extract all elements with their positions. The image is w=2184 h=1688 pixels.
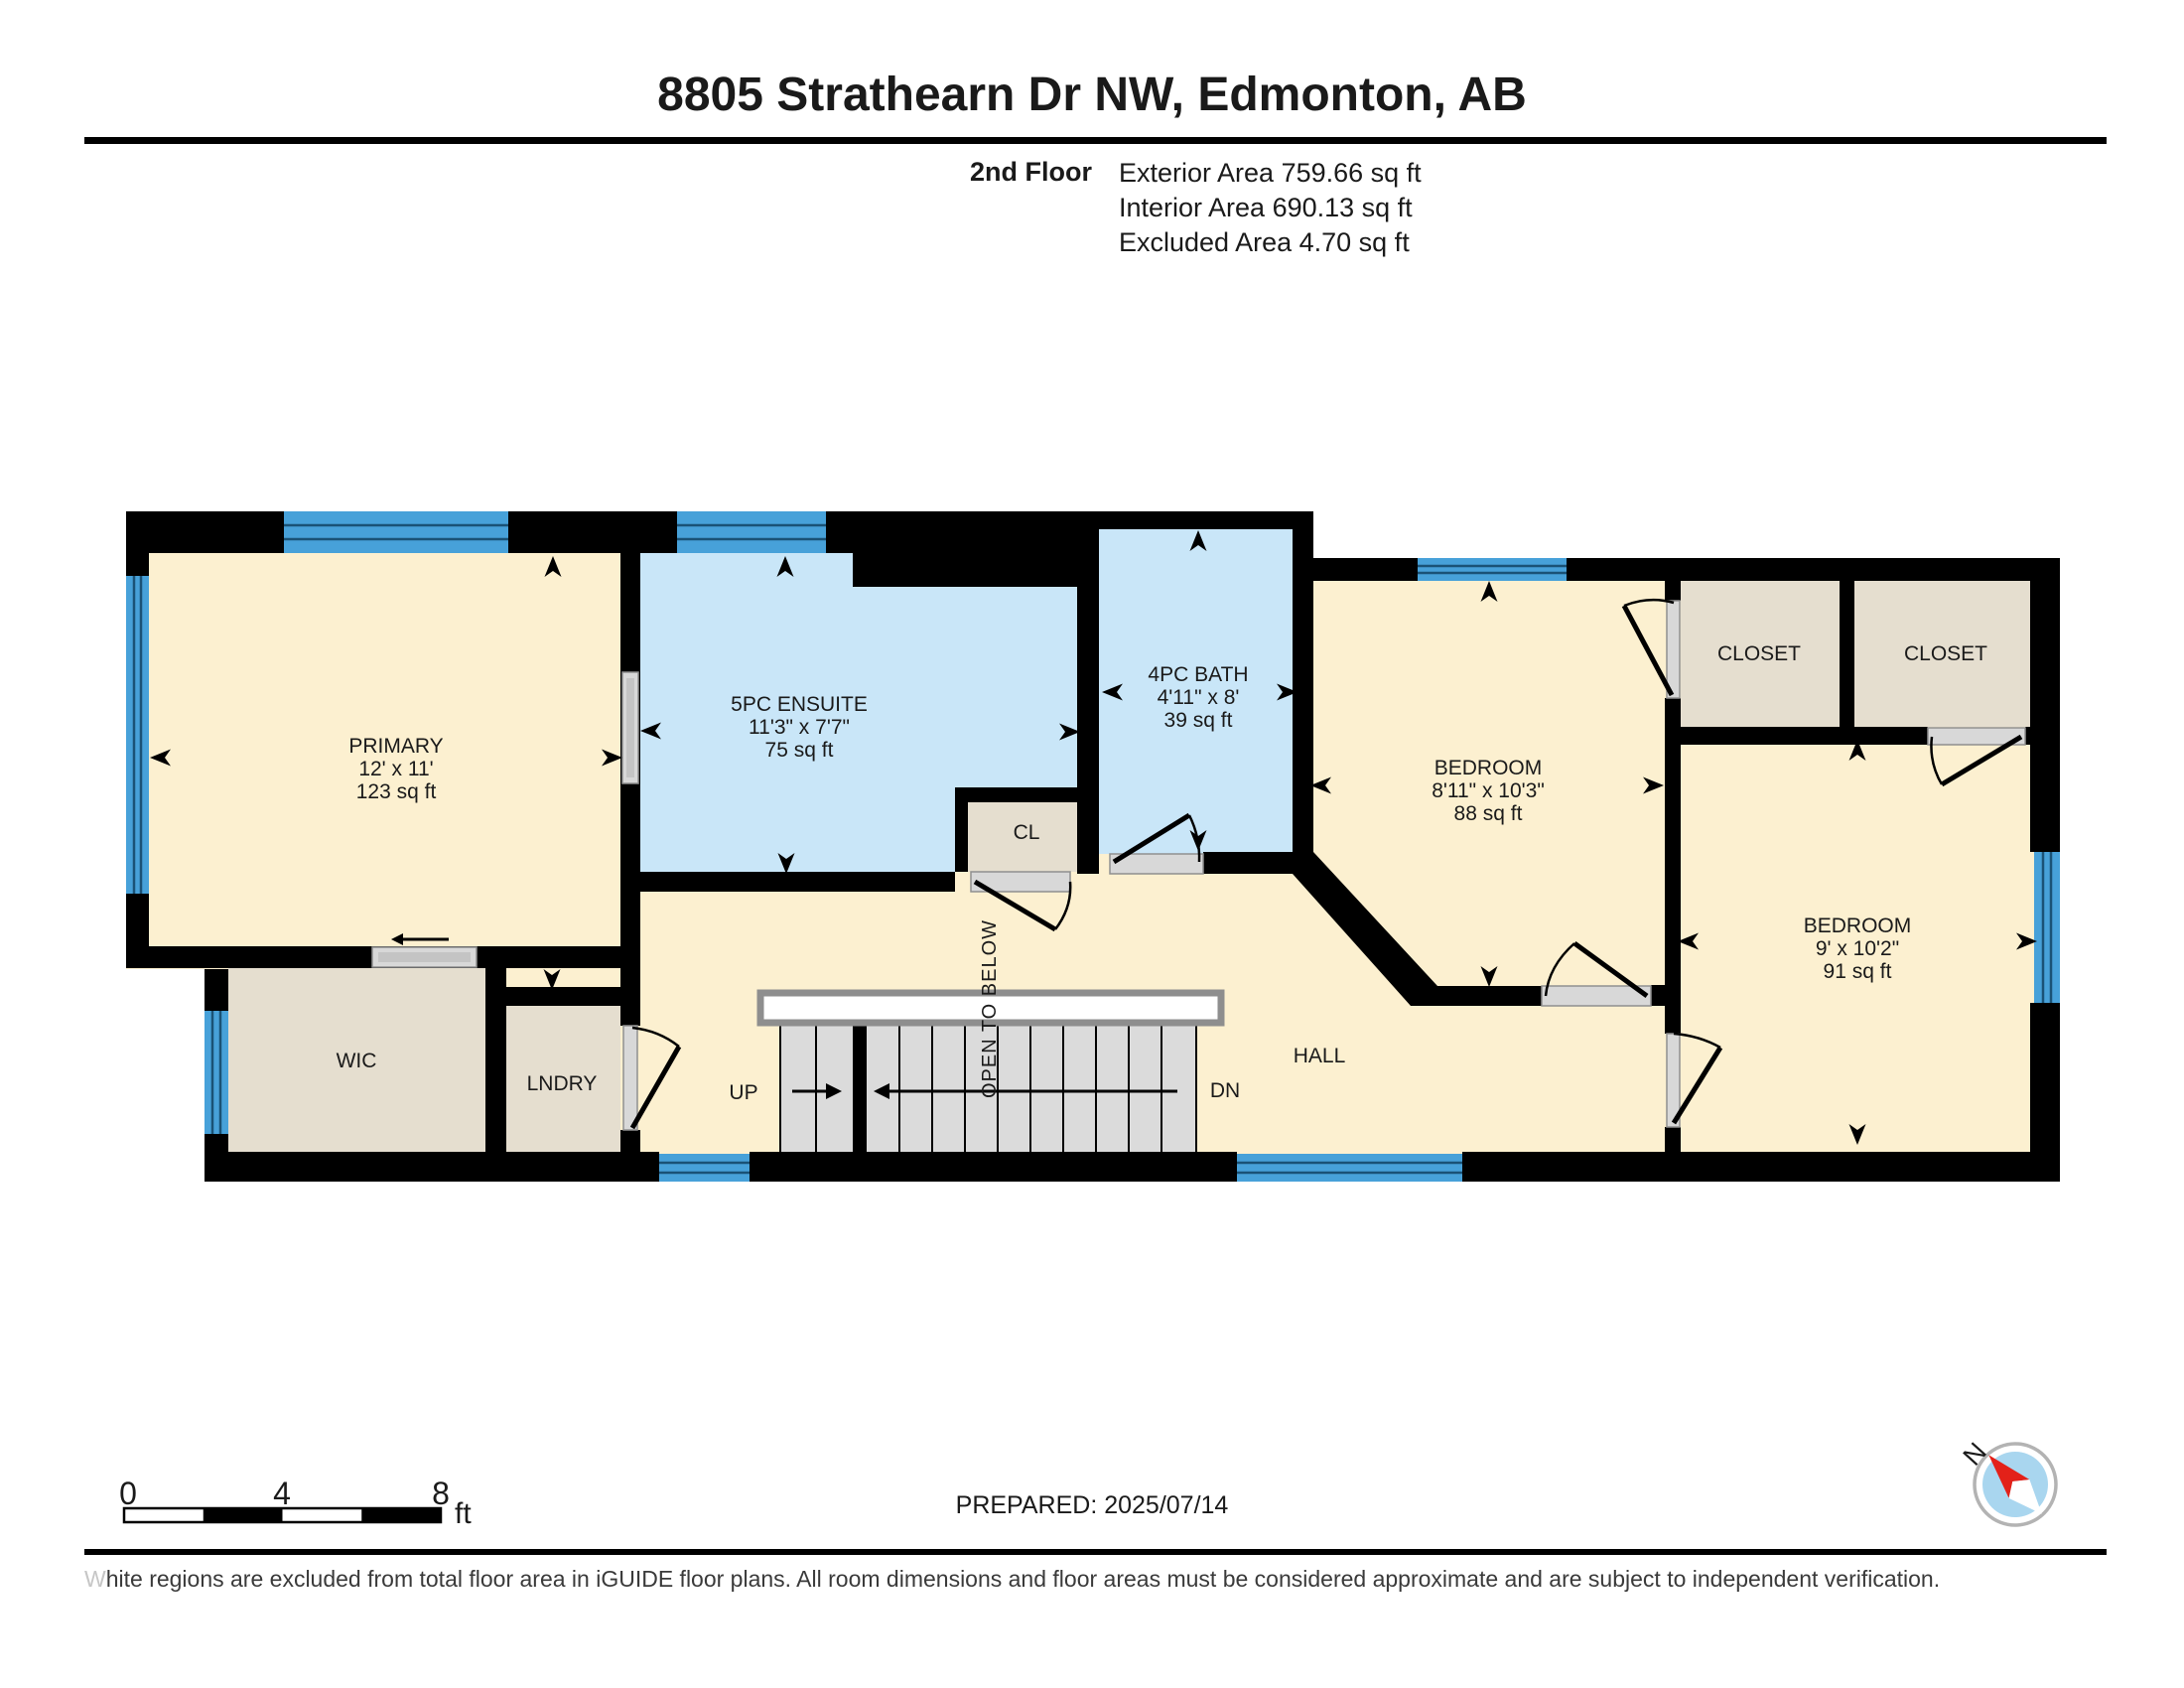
stairs-down-label: DN [1210, 1079, 1240, 1102]
stairs-up-label: UP [729, 1081, 757, 1104]
svg-text:91 sq ft: 91 sq ft [1824, 960, 1892, 983]
window [1418, 558, 1567, 581]
svg-text:BEDROOM: BEDROOM [1434, 757, 1543, 779]
disclaimer-text: hite regions are excluded from total flo… [106, 1566, 1940, 1592]
svg-text:4'11" x 8': 4'11" x 8' [1158, 686, 1240, 709]
window [2034, 852, 2060, 1003]
svg-text:123 sq ft: 123 sq ft [356, 780, 437, 803]
disclaimer-lead: W [84, 1566, 106, 1592]
svg-text:75 sq ft: 75 sq ft [765, 739, 834, 762]
room-closet2-label: CLOSET [1904, 642, 1987, 665]
room-closet1-label: CLOSET [1717, 642, 1801, 665]
svg-text:11'3" x 7'7": 11'3" x 7'7" [749, 716, 850, 739]
svg-text:88 sq ft: 88 sq ft [1454, 802, 1523, 825]
window [659, 1154, 750, 1182]
room-lndry-label: LNDRY [527, 1072, 598, 1095]
floor-plan-page: 8805 Strathearn Dr NW, Edmonton, AB 2nd … [0, 0, 2184, 1688]
prepared-date: PREPARED: 2025/07/14 [0, 1491, 2184, 1520]
svg-text:5PC ENSUITE: 5PC ENSUITE [731, 693, 868, 716]
svg-text:BEDROOM: BEDROOM [1804, 914, 1912, 937]
floor-plan: PRIMARY 12' x 11' 123 sq ft 5PC ENSUITE … [0, 0, 2184, 1688]
room-wic-label: WIC [337, 1050, 377, 1072]
room-primary-label: PRIMARY 12' x 11' 123 sq ft [348, 735, 443, 803]
svg-text:39 sq ft: 39 sq ft [1164, 709, 1233, 732]
room-cl-label: CL [1014, 821, 1040, 844]
open-to-below-label: OPEN TO BELOW [979, 919, 1001, 1098]
svg-text:9' x 10'2": 9' x 10'2" [1816, 937, 1899, 960]
disclaimer: White regions are excluded from total fl… [84, 1566, 2110, 1593]
svg-text:PRIMARY: PRIMARY [348, 735, 443, 758]
svg-text:4PC BATH: 4PC BATH [1148, 663, 1248, 686]
svg-text:12' x 11': 12' x 11' [358, 758, 433, 780]
window [284, 511, 508, 553]
room-hall-label: HALL [1294, 1045, 1346, 1067]
window [126, 576, 149, 894]
window [1237, 1154, 1462, 1182]
door-ensuite-sliding [622, 672, 638, 783]
svg-text:8'11" x 10'3": 8'11" x 10'3" [1432, 779, 1545, 802]
window [205, 1011, 228, 1134]
window [677, 511, 826, 553]
footer-divider [84, 1549, 2107, 1555]
